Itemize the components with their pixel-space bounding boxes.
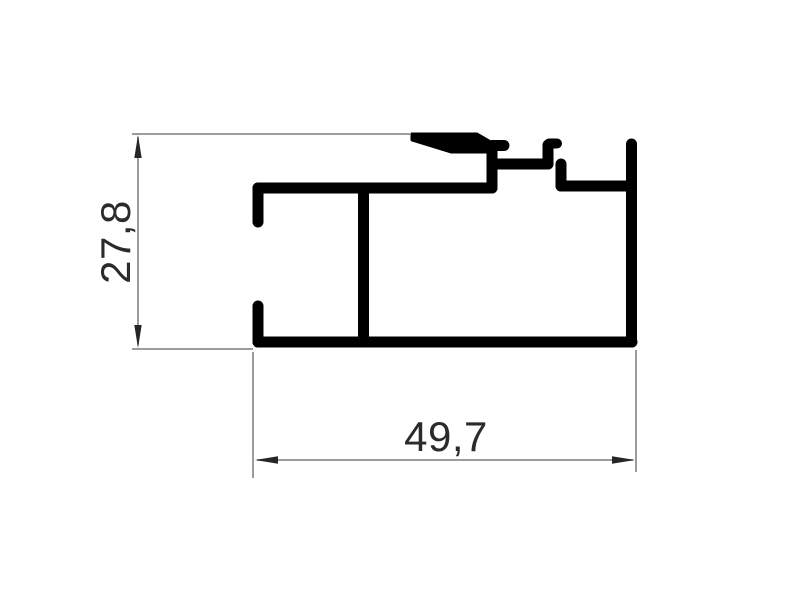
aluminum-profile-outline <box>258 134 632 342</box>
height-dimension-label: 27,8 <box>92 200 139 284</box>
profile-drawing: 27,8 49,7 <box>0 0 800 600</box>
technical-drawing-canvas: 27,8 49,7 <box>0 0 800 600</box>
width-arrow-left-icon <box>255 456 278 463</box>
profile-top-blade <box>412 134 489 152</box>
height-arrow-down-icon <box>134 325 141 348</box>
width-arrow-right-icon <box>612 456 635 463</box>
height-arrow-up-icon <box>134 135 141 158</box>
width-dimension-label: 49,7 <box>404 413 488 460</box>
